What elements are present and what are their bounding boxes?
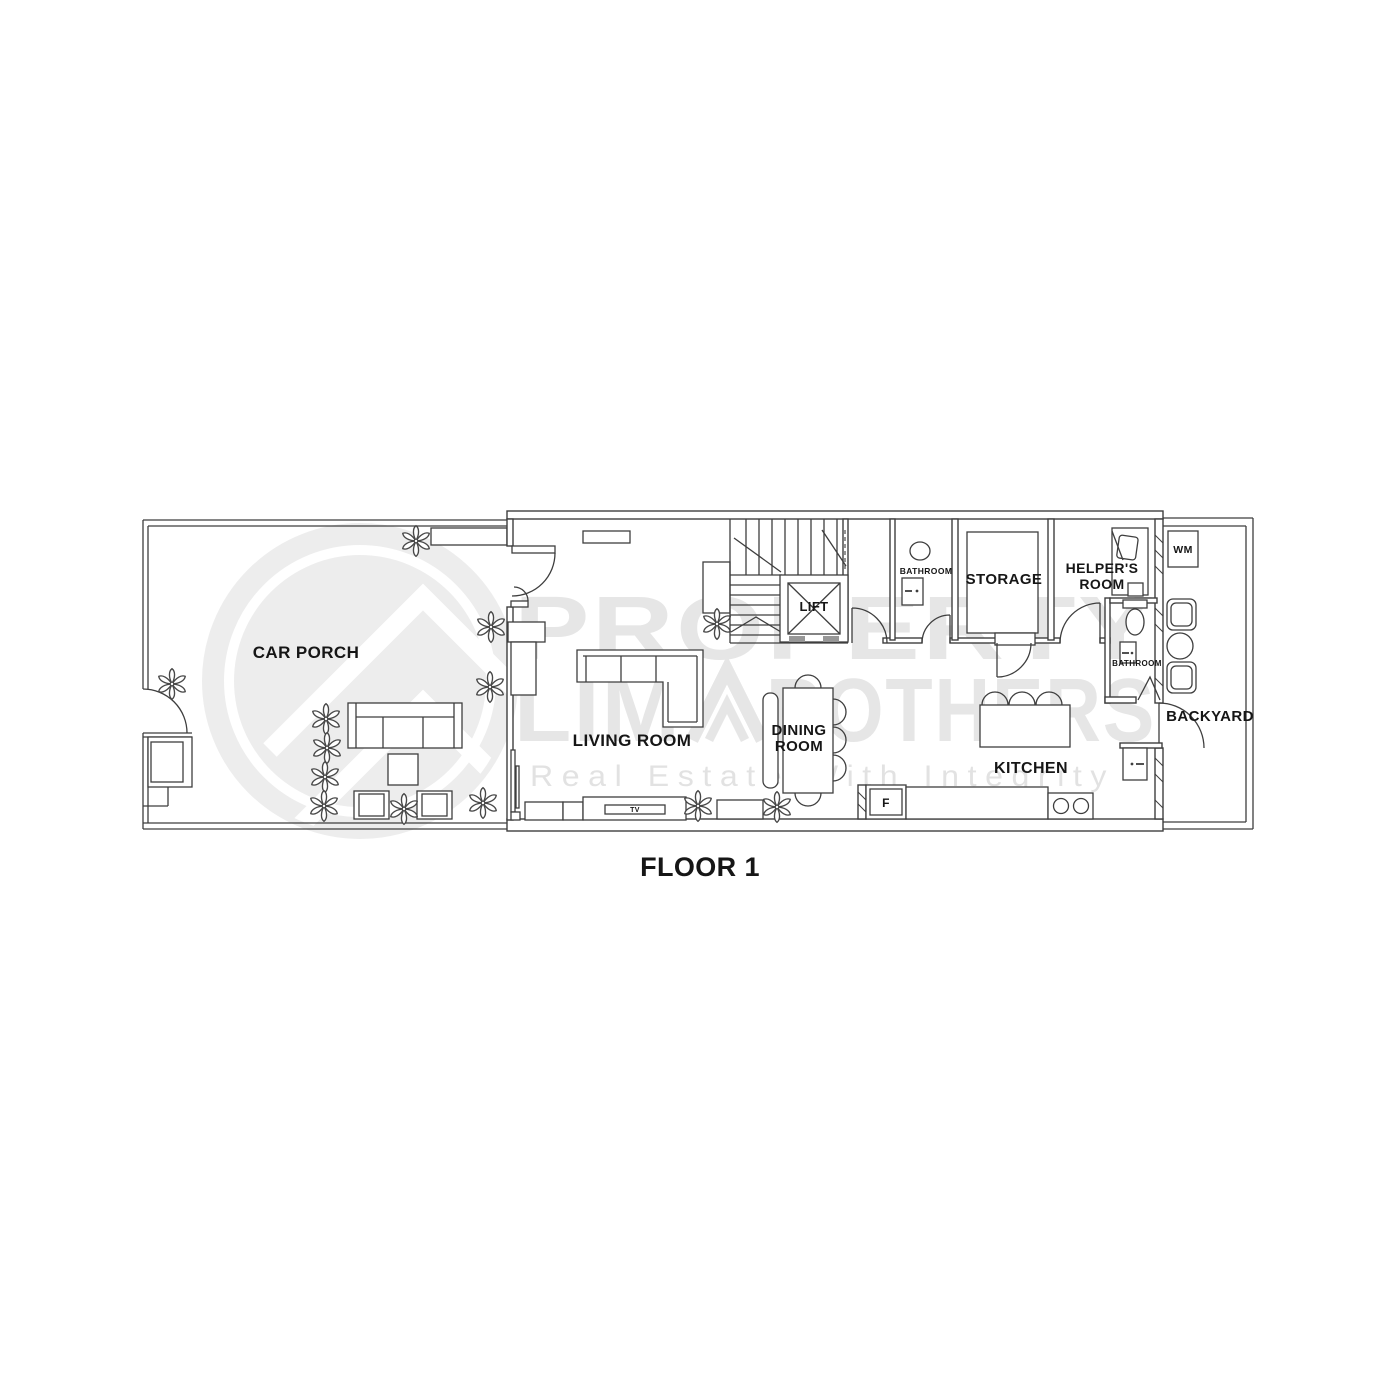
outdoor-coffee-table <box>388 754 418 785</box>
plant-icon <box>468 788 497 819</box>
fridge: F <box>866 785 906 819</box>
low-cabinet <box>525 802 563 820</box>
backyard-label: BACKYARD <box>1166 708 1254 725</box>
patio-chair <box>1167 599 1196 630</box>
outdoor-chair <box>354 791 389 819</box>
tv-label: TV <box>630 807 640 814</box>
washing-machine-label: WM <box>1173 544 1192 556</box>
gate-door <box>143 689 192 737</box>
low-cabinet <box>563 802 583 820</box>
page-title: FLOOR 1 <box>640 852 760 882</box>
outdoor-sofa <box>348 703 462 748</box>
entry-cabinet <box>511 642 536 695</box>
side-cabinet <box>703 562 730 613</box>
window-ledge <box>583 531 630 543</box>
dining-room: DINING ROOM <box>763 675 846 806</box>
kitchen-counter <box>906 787 1048 819</box>
sink <box>910 542 930 560</box>
lift: LIFT <box>780 575 848 642</box>
toilet <box>902 578 923 605</box>
lift-label: LIFT <box>799 599 828 614</box>
patio-table <box>1167 633 1193 659</box>
washing-machine: WM <box>1168 531 1198 567</box>
helpers-room-label-2: ROOM <box>1079 576 1124 592</box>
stove <box>1048 793 1093 819</box>
floor-plan-canvas: PROPERTY LIM ROTHERS Real Estate With In… <box>0 0 1400 1400</box>
kitchen-label: KITCHEN <box>994 760 1068 777</box>
dining-room-label-2: ROOM <box>775 738 823 755</box>
bathroom-1-label: BATHROOM <box>900 566 953 576</box>
low-cabinet <box>717 800 763 819</box>
plant-icon <box>157 669 186 700</box>
backyard: WM BACKYARD <box>1159 518 1254 829</box>
tv-console: TV <box>583 797 686 820</box>
floor-plan-page: PROPERTY LIM ROTHERS Real Estate With In… <box>0 0 1400 1400</box>
wall-stub <box>858 785 866 819</box>
car-porch-label: CAR PORCH <box>253 643 360 662</box>
patio-chair <box>1167 662 1196 693</box>
shoe-console <box>508 622 545 642</box>
storage-label: STORAGE <box>966 571 1043 588</box>
helpers-room-label-1: HELPER'S <box>1066 560 1139 576</box>
dining-room-label-1: DINING <box>772 722 827 739</box>
fridge-label: F <box>882 796 890 810</box>
plant-icon <box>762 792 791 823</box>
utility-box <box>143 737 192 806</box>
bathroom-2-label: BATHROOM <box>1112 659 1162 668</box>
outdoor-chair <box>417 791 452 819</box>
plant-icon <box>683 791 712 822</box>
living-room-label: LIVING ROOM <box>573 731 692 750</box>
storage-closet-notch <box>995 633 1035 645</box>
entrance-ledge <box>431 528 507 545</box>
